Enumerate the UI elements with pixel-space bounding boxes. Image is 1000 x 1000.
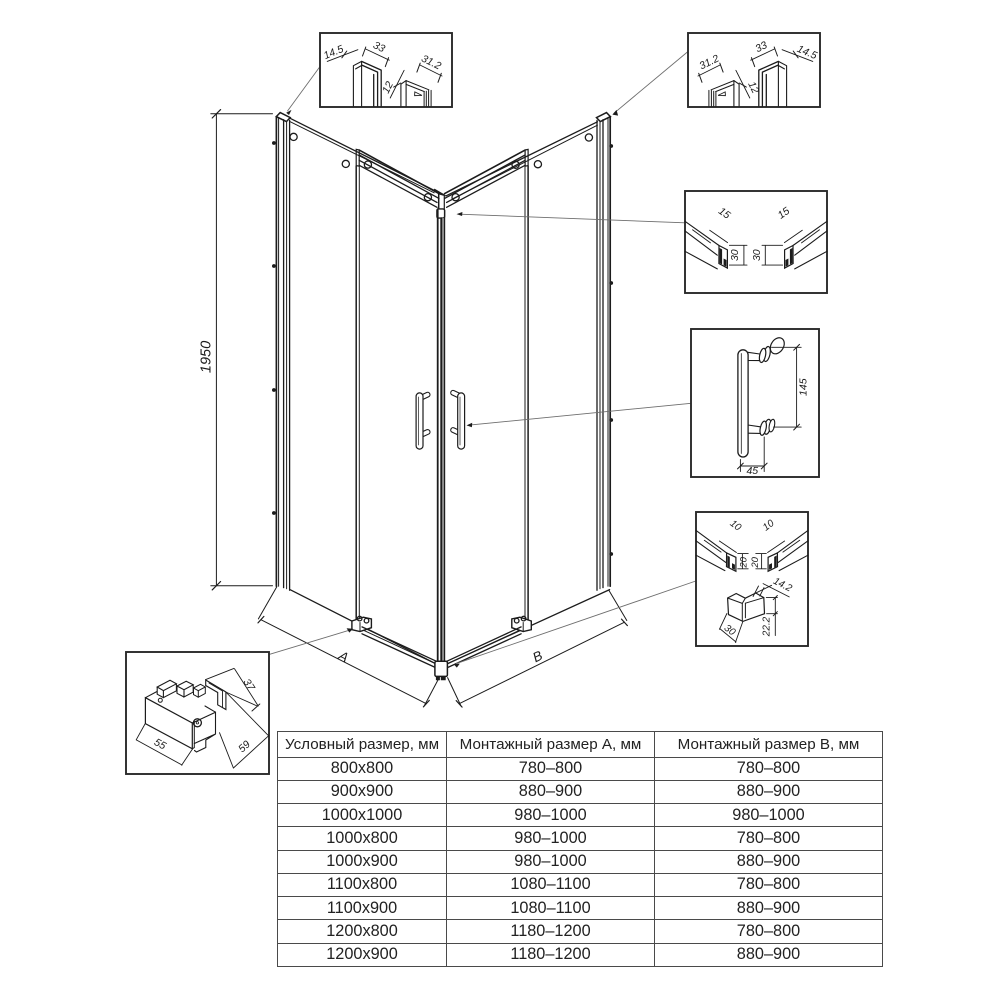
svg-text:37: 37 — [241, 677, 258, 694]
svg-text:30: 30 — [722, 623, 738, 639]
svg-text:20: 20 — [738, 556, 749, 568]
svg-text:15: 15 — [776, 205, 793, 222]
svg-text:1950: 1950 — [199, 341, 215, 373]
svg-text:22.2: 22.2 — [761, 616, 772, 637]
svg-text:145: 145 — [798, 378, 810, 396]
svg-text:30: 30 — [751, 249, 763, 261]
svg-text:12: 12 — [380, 80, 396, 96]
svg-text:10: 10 — [761, 518, 777, 534]
svg-text:14.2: 14.2 — [771, 576, 794, 595]
svg-text:15: 15 — [716, 205, 733, 222]
svg-text:A: A — [335, 647, 351, 665]
svg-text:31.2: 31.2 — [697, 53, 721, 73]
svg-text:30: 30 — [729, 249, 741, 261]
svg-text:31.2: 31.2 — [419, 53, 443, 73]
svg-text:10: 10 — [728, 518, 744, 534]
svg-text:45: 45 — [746, 465, 758, 477]
svg-text:20: 20 — [750, 556, 761, 568]
